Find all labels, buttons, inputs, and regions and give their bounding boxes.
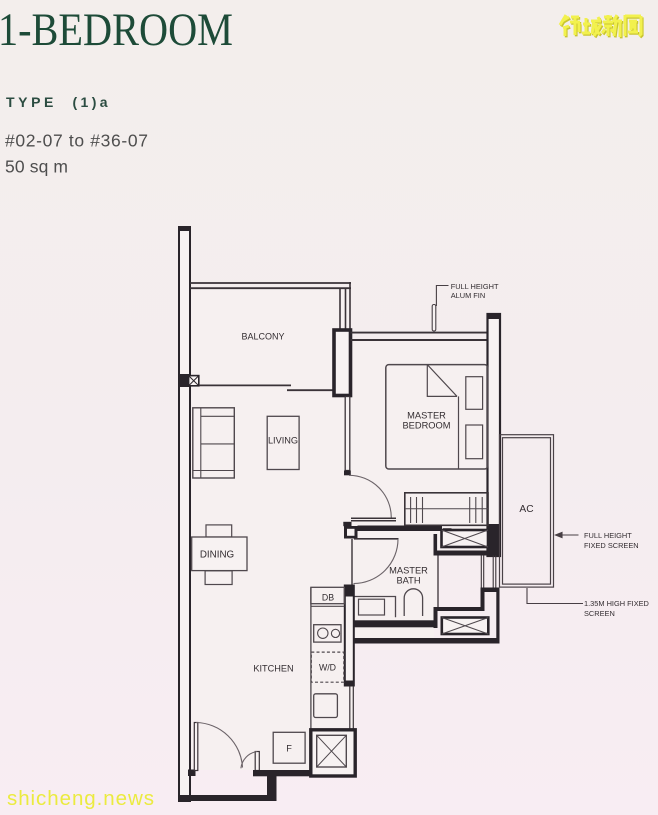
- svg-text:DINING: DINING: [200, 550, 234, 561]
- svg-text:FULL HEIGHT: FULL HEIGHT: [584, 531, 632, 540]
- svg-text:BALCONY: BALCONY: [241, 332, 284, 342]
- svg-text:W/D: W/D: [319, 662, 336, 672]
- svg-text:SCREEN: SCREEN: [584, 609, 615, 618]
- svg-text:MASTER: MASTER: [389, 566, 428, 576]
- svg-text:KITCHEN: KITCHEN: [253, 664, 293, 674]
- svg-text:#02-07 to #36-07: #02-07 to #36-07: [5, 131, 148, 151]
- svg-text:ALUM FIN: ALUM FIN: [451, 291, 486, 300]
- svg-text:50 sq m: 50 sq m: [5, 157, 68, 177]
- svg-text:AC: AC: [519, 504, 533, 515]
- svg-text:shicheng.news: shicheng.news: [7, 787, 154, 810]
- svg-text:BATH: BATH: [396, 575, 420, 585]
- svg-text:BEDROOM: BEDROOM: [402, 421, 450, 431]
- svg-text:LIVING: LIVING: [268, 436, 298, 446]
- svg-text:1.35M HIGH FIXED: 1.35M HIGH FIXED: [584, 599, 649, 608]
- svg-text:FULL HEIGHT: FULL HEIGHT: [451, 282, 499, 291]
- svg-text:FIXED SCREEN: FIXED SCREEN: [584, 541, 639, 550]
- svg-text:MASTER: MASTER: [407, 411, 446, 421]
- svg-text:1-BEDROOM: 1-BEDROOM: [0, 4, 233, 56]
- svg-text:F: F: [286, 744, 292, 754]
- svg-text:DB: DB: [322, 592, 334, 602]
